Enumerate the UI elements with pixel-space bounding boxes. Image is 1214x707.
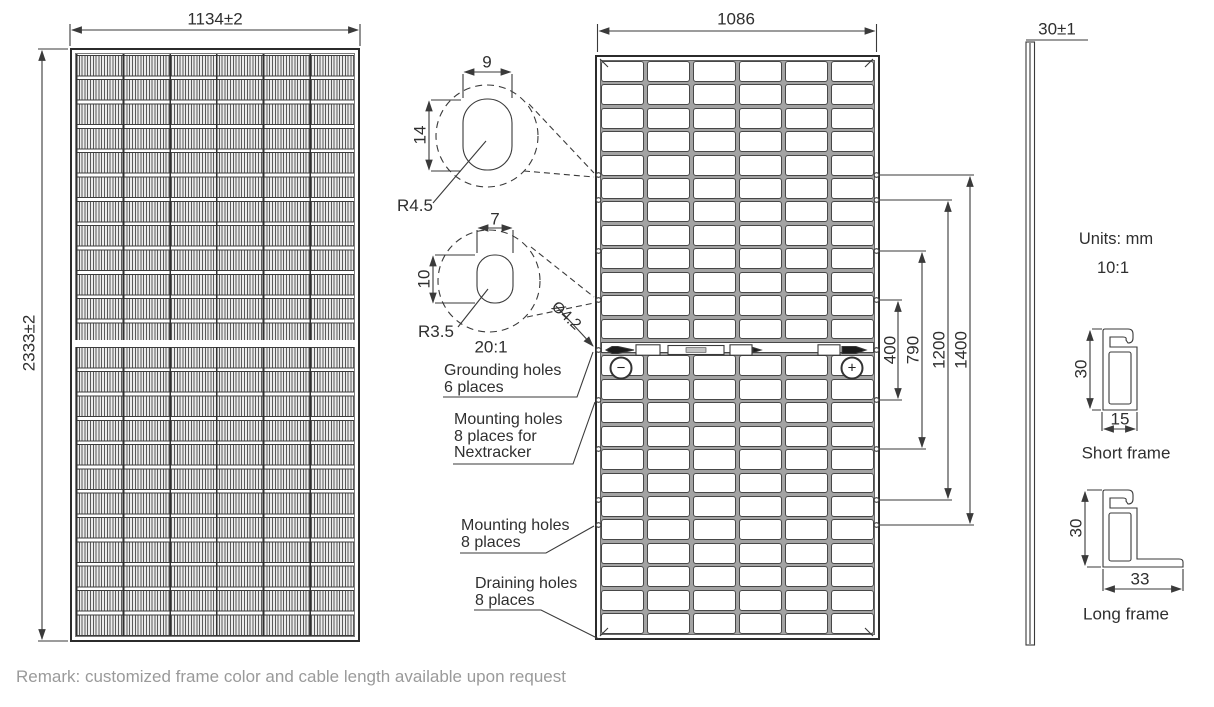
detail-small-height-dim: 10 — [416, 270, 433, 289]
detail-small-radius-dim: R3.5 — [418, 323, 454, 340]
detail-large-width-dim: 9 — [482, 54, 491, 71]
solar-panel-technical-drawing: − + 1134±2 2333±2 1086 400 790 1200 1400… — [0, 0, 1214, 707]
plus-icon: + — [848, 361, 857, 376]
front-width-dim: 1134±2 — [187, 11, 242, 28]
front-height-dim: 2333±2 — [21, 315, 38, 372]
front-height-dimension-line — [38, 49, 68, 641]
callout-line: 8 places for — [454, 429, 563, 446]
short-frame-height-dim: 30 — [1073, 360, 1090, 379]
positive-terminal-badge: + — [841, 357, 864, 380]
remark-text: Remark: customized frame color and cable… — [16, 667, 566, 687]
callout-line: Grounding holes — [444, 363, 561, 380]
callout-line: 8 places — [475, 593, 577, 610]
detail-scale-label: 20:1 — [474, 339, 507, 356]
draining-holes-callout: Draining holes 8 places — [475, 576, 577, 609]
long-frame-label: Long frame — [1083, 606, 1169, 623]
short-frame-width-dim: 15 — [1111, 411, 1130, 428]
side-thickness-dim: 30±1 — [1038, 21, 1076, 38]
drawing-linework — [0, 0, 1214, 707]
callout-line: Mounting holes — [454, 412, 563, 429]
grounding-holes-callout: Grounding holes 6 places — [444, 363, 561, 396]
detail-large-height-dim: 14 — [412, 126, 429, 145]
detail-small-width-dim: 7 — [490, 211, 499, 228]
callout-line: 6 places — [444, 380, 561, 397]
side-view-outline — [1026, 40, 1088, 645]
mounting-holes-callout: Mounting holes 8 places — [461, 518, 570, 551]
spacing-dim-790: 790 — [905, 336, 922, 364]
long-frame-height-dim: 30 — [1068, 519, 1085, 538]
detail-large-hole-drawing — [429, 72, 594, 203]
detail-large-radius-dim: R4.5 — [397, 197, 433, 214]
callout-line: Draining holes — [475, 576, 577, 593]
scale-note: 10:1 — [1097, 260, 1129, 277]
units-note: Units: mm — [1079, 231, 1153, 248]
spacing-dim-400: 400 — [882, 336, 899, 364]
short-frame-label: Short frame — [1082, 445, 1171, 462]
long-frame-width-dim: 33 — [1131, 571, 1150, 588]
back-width-dim: 1086 — [717, 11, 755, 28]
callout-line: Nextracker — [454, 445, 563, 462]
minus-icon: − — [617, 361, 626, 376]
nextracker-mounting-holes-callout: Mounting holes 8 places for Nextracker — [454, 412, 563, 462]
callout-line: 8 places — [461, 535, 570, 552]
spacing-dim-1400: 1400 — [953, 331, 970, 369]
junction-box-connectors — [606, 345, 866, 355]
callout-line: Mounting holes — [461, 518, 570, 535]
negative-terminal-badge: − — [610, 357, 633, 380]
spacing-dim-1200: 1200 — [931, 331, 948, 369]
